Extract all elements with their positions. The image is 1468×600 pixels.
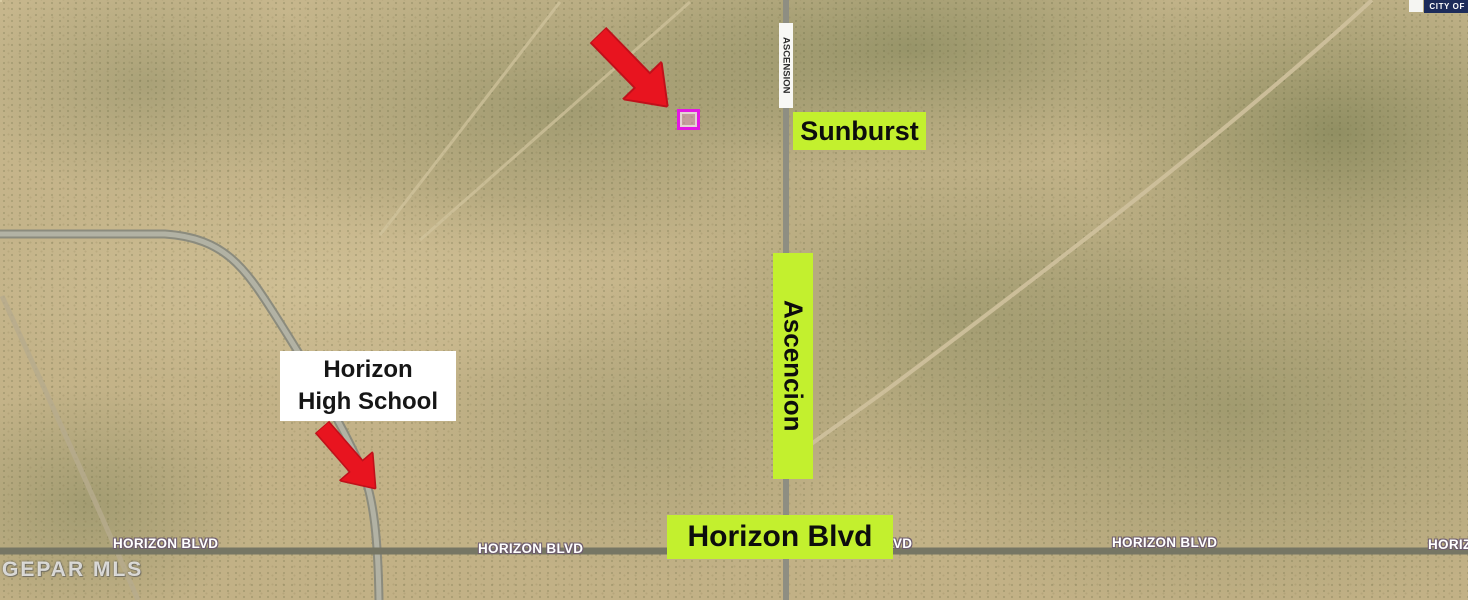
sunburst-label-text: Sunburst — [800, 116, 919, 147]
sunburst-area-label: Sunburst — [793, 112, 926, 150]
school-name-line1: Horizon — [323, 354, 412, 386]
subject-parcel-marker — [677, 109, 700, 130]
diagonal-road-ne — [810, 0, 1372, 445]
street-label-horizon-blvd-5: HORIZON BLVD — [1428, 537, 1468, 552]
street-label-text: ASCENSION — [781, 37, 792, 93]
street-label-ascension-vertical: ASCENSION — [779, 23, 793, 108]
horizon-blvd-band-label: Horizon Blvd — [667, 515, 893, 559]
school-name-line2: High School — [298, 386, 438, 418]
ascencion-label-text: Ascencion — [778, 300, 809, 432]
dirt-road-2 — [380, 2, 560, 235]
city-banner: CITY OF — [1424, 0, 1468, 13]
city-banner-white-strip — [1409, 0, 1423, 12]
ascencion-road-band-label: Ascencion — [773, 253, 813, 479]
horizon-blvd-label-text: Horizon Blvd — [688, 520, 873, 554]
roads-layer — [0, 0, 1468, 600]
satellite-map-image[interactable]: ASCENSION HORIZON BLVD HORIZON BLVD HORI… — [0, 0, 1468, 600]
street-label-horizon-blvd-4: HORIZON BLVD — [1112, 535, 1217, 550]
street-label-horizon-blvd-2: HORIZON BLVD — [478, 541, 583, 556]
school-callout-box: Horizon High School — [280, 351, 456, 421]
mls-watermark: GEPAR MLS — [2, 558, 143, 582]
street-label-horizon-blvd-1: HORIZON BLVD — [113, 536, 218, 551]
